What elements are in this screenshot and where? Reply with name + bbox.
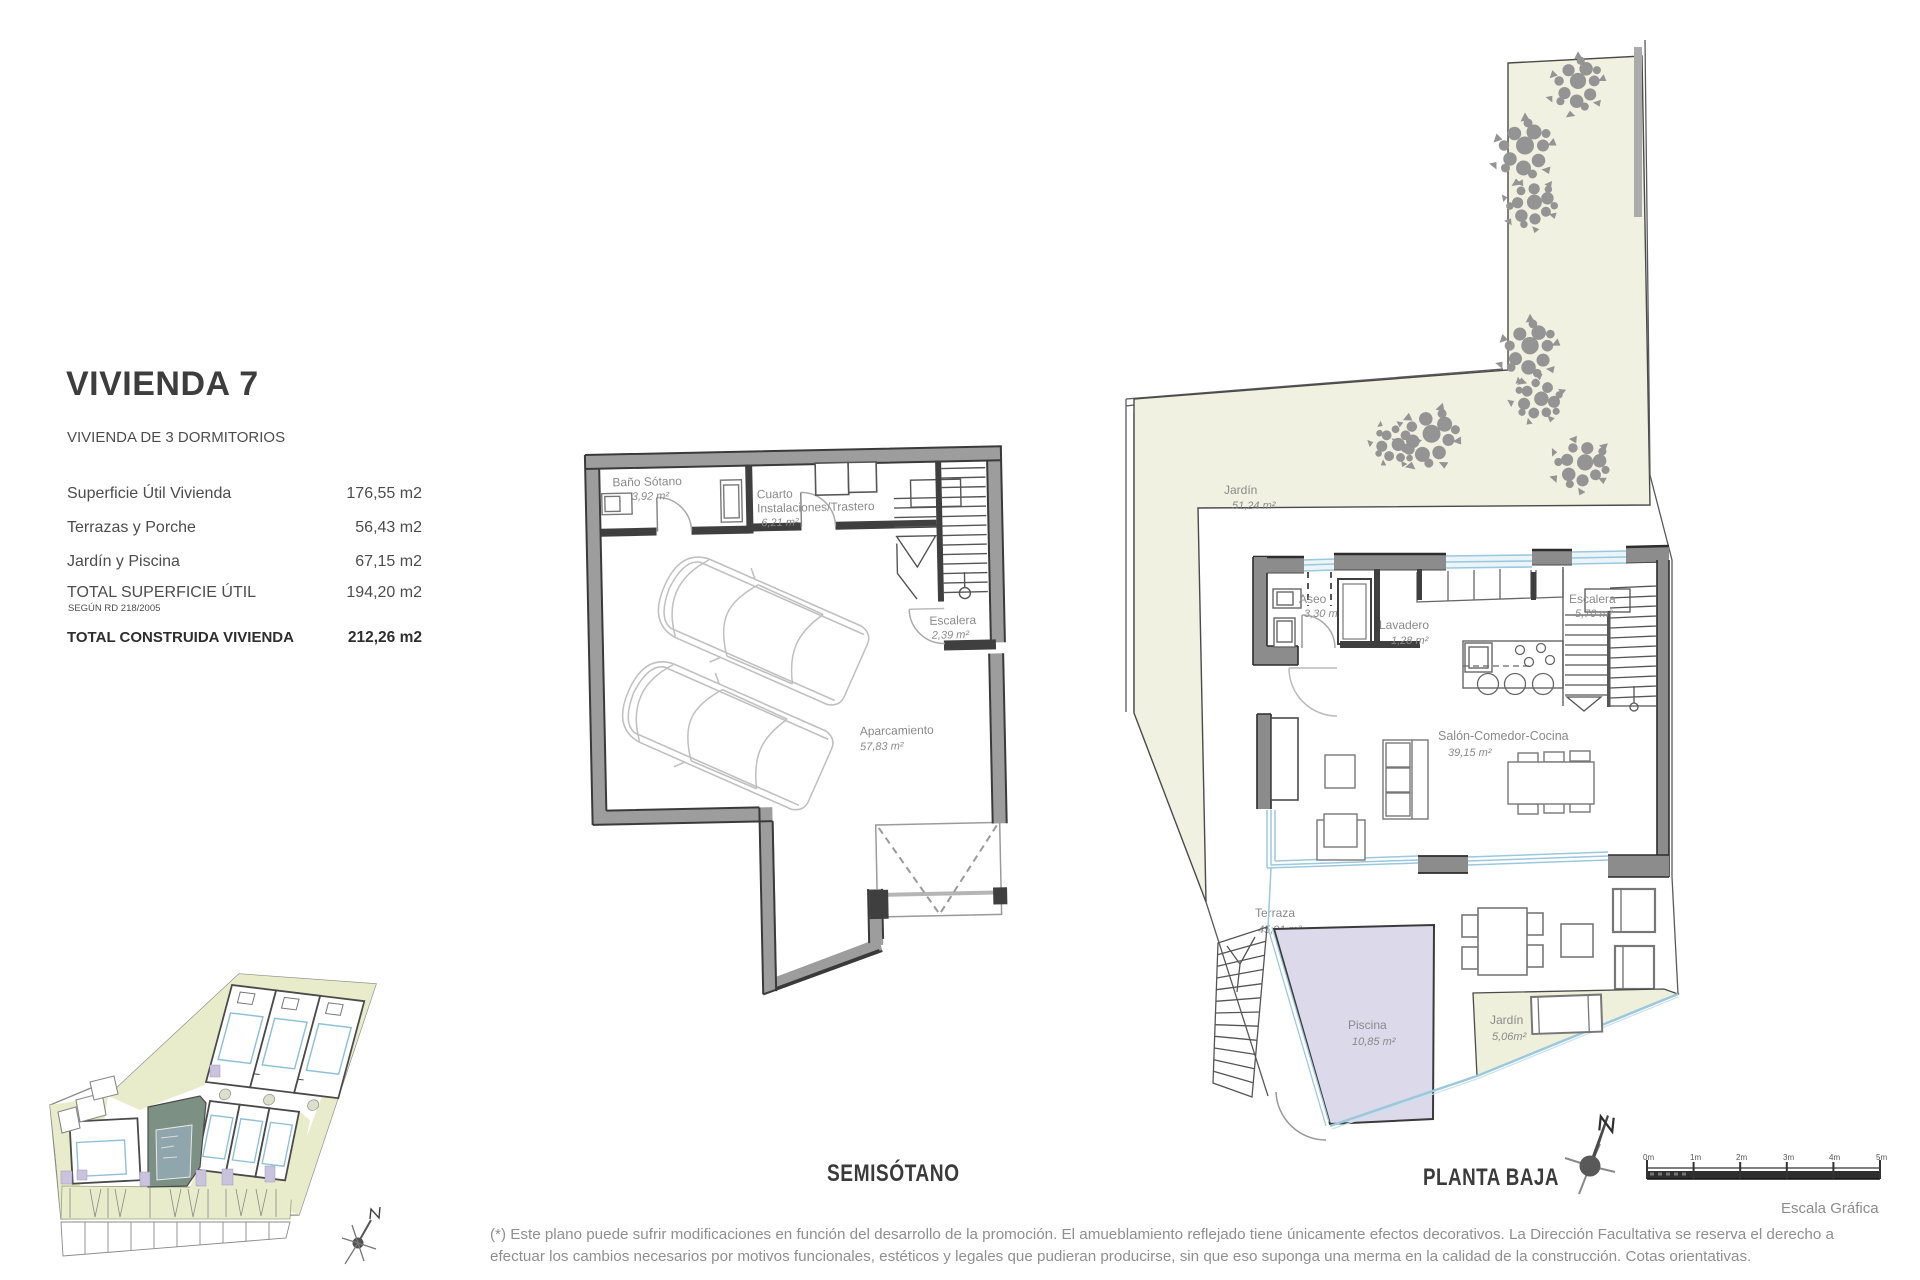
svg-text:Jardín: Jardín — [1224, 483, 1257, 497]
svg-text:Piscina: Piscina — [1348, 1018, 1387, 1032]
svg-text:Aseo: Aseo — [1299, 592, 1327, 606]
svg-text:39,15 m²: 39,15 m² — [1448, 747, 1492, 759]
svg-text:3m: 3m — [1783, 1153, 1794, 1162]
svg-text:5,70 m²: 5,70 m² — [1575, 608, 1613, 620]
svg-text:6,21 m²: 6,21 m² — [761, 517, 799, 530]
svg-text:1m: 1m — [1690, 1153, 1701, 1162]
svg-text:5m: 5m — [1876, 1153, 1887, 1162]
svg-text:3,30 m²: 3,30 m² — [1304, 608, 1342, 620]
svg-text:2,39 m²: 2,39 m² — [931, 629, 970, 642]
svg-text:Escalera: Escalera — [1569, 592, 1616, 606]
svg-text:10,85 m²: 10,85 m² — [1352, 1036, 1396, 1048]
svg-text:3,92 m²: 3,92 m² — [632, 490, 670, 503]
svg-text:Instalaciones/Trastero: Instalaciones/Trastero — [757, 499, 875, 515]
svg-text:57,83 m²: 57,83 m² — [860, 740, 904, 753]
svg-text:0m: 0m — [1643, 1153, 1654, 1162]
svg-text:1,28 m²: 1,28 m² — [1391, 635, 1429, 647]
svg-text:Aparcamiento: Aparcamiento — [860, 723, 935, 739]
svg-text:51,24 m²: 51,24 m² — [1232, 500, 1276, 512]
svg-text:Baño Sótano: Baño Sótano — [612, 474, 682, 489]
svg-text:Lavadero: Lavadero — [1379, 618, 1429, 632]
svg-text:Salón-Comedor-Cocina: Salón-Comedor-Cocina — [1438, 729, 1569, 743]
svg-text:Terraza: Terraza — [1255, 906, 1295, 920]
svg-text:4m: 4m — [1829, 1153, 1840, 1162]
svg-text:Cuarto: Cuarto — [757, 487, 794, 502]
svg-text:2m: 2m — [1736, 1153, 1747, 1162]
svg-text:Jardín: Jardín — [1490, 1013, 1523, 1027]
svg-text:Escalera: Escalera — [929, 613, 976, 628]
svg-text:5,06m²: 5,06m² — [1492, 1031, 1527, 1043]
